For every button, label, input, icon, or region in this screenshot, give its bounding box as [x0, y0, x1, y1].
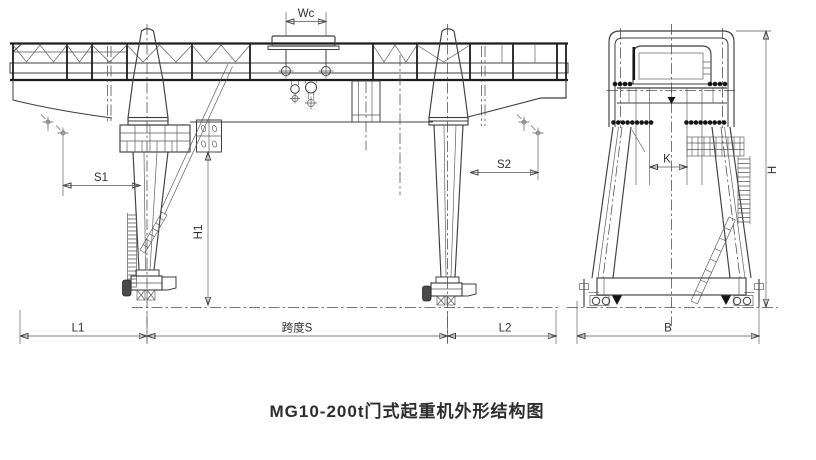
end-wheel-right — [721, 279, 764, 307]
l1-label: L1 — [72, 323, 85, 335]
hook-assembly — [290, 81, 317, 110]
dimension-k: K — [650, 154, 688, 168]
wc-label: Wc — [298, 8, 315, 20]
trolley-wheel-right-icon — [319, 64, 334, 79]
trolley — [268, 36, 339, 79]
b-label: B — [664, 323, 672, 335]
dimension-s2: S2 — [470, 140, 538, 180]
drawing-caption: MG10-200t门式起重机外形结构图 — [270, 401, 545, 421]
s2-label: S2 — [497, 159, 511, 171]
left-bogie — [123, 270, 177, 300]
underslung-drive-box — [352, 55, 400, 195]
l2-label: L2 — [499, 323, 512, 335]
h1-label: H1 — [193, 225, 205, 240]
front-view: Wc — [10, 8, 568, 344]
dimension-wc: Wc — [286, 8, 326, 36]
leg-support-box — [120, 125, 190, 152]
bolt-row-lower — [611, 120, 726, 125]
dimension-h: H — [736, 31, 779, 307]
dimension-l1: L1 — [20, 310, 147, 344]
end-view: K — [567, 24, 779, 344]
technical-drawing: Wc — [0, 0, 816, 460]
k-label: K — [663, 154, 671, 166]
dimension-s1: S1 — [63, 140, 140, 196]
end-ladder — [738, 156, 750, 224]
trolley-wheel-left-icon — [279, 64, 294, 79]
end-wheel-left — [580, 279, 623, 307]
bridge-girder — [10, 44, 568, 123]
s1-label: S1 — [94, 172, 108, 184]
end-stairway — [691, 217, 735, 304]
end-trolley — [617, 46, 727, 88]
right-bogie — [423, 277, 477, 305]
h-label: H — [767, 166, 779, 174]
right-leg — [429, 24, 485, 343]
dimension-span: 跨度S — [147, 321, 448, 337]
access-stairway — [140, 64, 233, 253]
dimension-l2: L2 — [448, 310, 557, 344]
end-girder-band — [617, 88, 727, 185]
dimension-h1: H1 — [193, 152, 215, 305]
span-label: 跨度S — [282, 321, 313, 335]
